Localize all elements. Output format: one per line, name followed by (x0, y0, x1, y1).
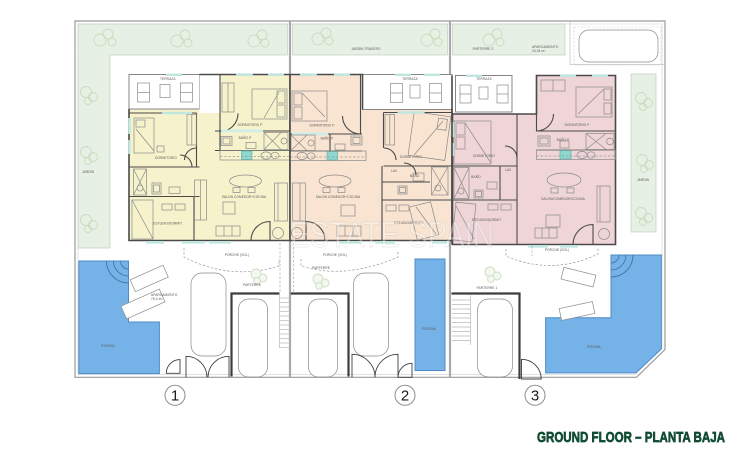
svg-text:SALON/COMEDOR/COCINA: SALON/COMEDOR/COCINA (541, 197, 585, 201)
svg-text:JARDIN: JARDIN (637, 178, 650, 182)
svg-text:BAÑO: BAÑO (410, 173, 420, 178)
svg-text:PARTERRE 2: PARTERRE 2 (473, 47, 494, 51)
svg-text:DORMITORIO: DORMITORIO (473, 154, 495, 158)
svg-text:24,04 m²: 24,04 m² (532, 49, 545, 53)
svg-text:PARTERRE 1: PARTERRE 1 (477, 286, 498, 290)
svg-text:PISCINA: PISCINA (101, 344, 115, 348)
svg-text:ESTATE SPAIN: ESTATE SPAIN (290, 214, 494, 255)
svg-text:PARTERRE: PARTERRE (312, 266, 330, 270)
svg-text:1: 1 (171, 388, 179, 405)
svg-text:DORMITORIO: DORMITORIO (155, 156, 177, 160)
svg-text:PARTERRE: PARTERRE (243, 283, 261, 287)
svg-text:JARDIN: JARDIN (82, 170, 95, 174)
svg-text:ESTUDIO/DORMIT.: ESTUDIO/DORMIT. (153, 222, 183, 226)
svg-text:BAÑO: BAÑO (471, 174, 481, 179)
svg-text:DORMITORIO P: DORMITORIO P (238, 123, 263, 127)
svg-text:76,0 m²: 76,0 m² (151, 297, 163, 301)
svg-text:TERRAZA: TERRAZA (160, 77, 176, 81)
svg-text:BAÑO P: BAÑO P (321, 136, 334, 141)
svg-text:JARDIN TRASERO: JARDIN TRASERO (351, 47, 381, 51)
svg-text:BAÑO P: BAÑO P (239, 135, 252, 140)
svg-text:DORMITORIO P: DORMITORIO P (565, 123, 590, 127)
svg-text:DORMITORIO P: DORMITORIO P (310, 124, 335, 128)
svg-text:3: 3 (531, 388, 539, 405)
svg-text:PORCHE (SOL): PORCHE (SOL) (545, 248, 569, 252)
svg-text:LAV.: LAV. (505, 168, 512, 172)
svg-text:GROUND FLOOR – PLANTA BAJA: GROUND FLOOR – PLANTA BAJA (537, 429, 725, 446)
svg-text:TERRAZA: TERRAZA (476, 77, 492, 81)
svg-text:PISCINA: PISCINA (587, 345, 601, 349)
svg-text:SALON COMEDOR+COCINA: SALON COMEDOR+COCINA (316, 195, 361, 199)
svg-text:PISCINA: PISCINA (422, 327, 436, 331)
svg-text:TERRAZA: TERRAZA (402, 77, 418, 81)
svg-text:2: 2 (401, 388, 409, 405)
svg-text:SALON COMEDOR+COCINA: SALON COMEDOR+COCINA (222, 195, 267, 199)
svg-text:PORCHE (SOL): PORCHE (SOL) (225, 253, 249, 257)
svg-text:LAV.: LAV. (391, 169, 398, 173)
